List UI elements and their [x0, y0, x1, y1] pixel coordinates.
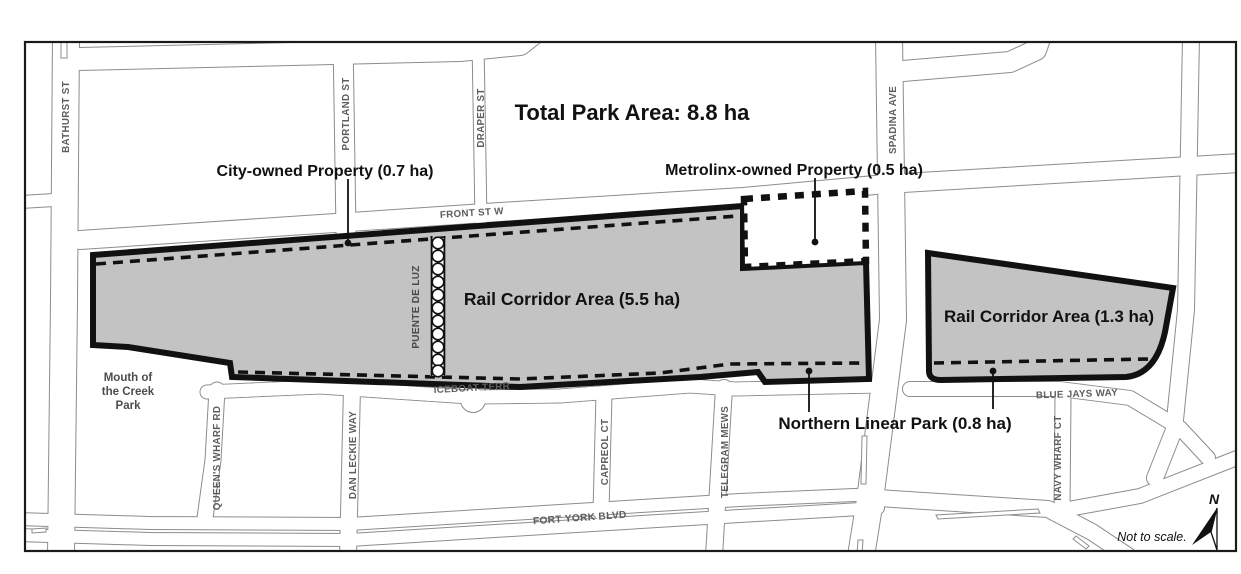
street-label-spadina: SPADINA AVE [888, 86, 899, 154]
bridge-chain-link [432, 263, 444, 275]
bridge-chain [432, 237, 444, 377]
map-title: Total Park Area: 8.8 ha [515, 100, 751, 125]
bridge-chain-link [432, 250, 444, 262]
street-label-navy-wharf: NAVY WHARF CT [1053, 415, 1064, 500]
rail-corridor-west-label: Rail Corridor Area (5.5 ha) [464, 289, 680, 309]
bridge-chain-link [432, 341, 444, 353]
street-label-telegram: TELEGRAM MEWS [720, 406, 731, 498]
northern-linear-park-dot-east [990, 368, 997, 375]
city-owned-label: City-owned Property (0.7 ha) [217, 163, 434, 180]
mouth-of-creek-park-label: the Creek [102, 386, 155, 398]
bridge-chain-link [432, 302, 444, 314]
street-label-portland: PORTLAND ST [341, 78, 352, 151]
northern-linear-park-dot-west [806, 368, 813, 375]
park-plan-figure: Total Park Area: 8.8 ha City-owned Prope… [0, 0, 1241, 574]
street-label-queens-wharf: QUEEN'S WHARF RD [212, 406, 223, 511]
bridge-chain-link [432, 328, 444, 340]
mouth-of-creek-park-label: Park [116, 400, 142, 412]
city-owned-leader-dot [345, 240, 352, 247]
metrolinx-parcel [744, 191, 866, 267]
puente-de-luz-label: PUENTE DE LUZ [411, 265, 422, 348]
bridge-chain-link [432, 276, 444, 288]
fort-york-west-median [32, 528, 46, 533]
spadina-median [861, 436, 867, 484]
puente-de-luz-bridge [430, 236, 446, 377]
north-label: N [1209, 491, 1220, 507]
street-label-bathurst: BATHURST ST [61, 81, 72, 153]
bridge-chain-link [432, 289, 444, 301]
street-label-dan-leckie: DAN LECKIE WAY [348, 411, 359, 499]
street-label-capreol: CAPREOL CT [600, 419, 611, 486]
bathurst-median [61, 42, 67, 58]
metrolinx-owned-label: Metrolinx-owned Property (0.5 ha) [665, 162, 923, 179]
mouth-of-creek-park-label: Mouth of [104, 372, 153, 384]
scale-note: Not to scale. [1117, 530, 1186, 544]
rail-corridor-east-label: Rail Corridor Area (1.3 ha) [944, 307, 1154, 326]
park-area-map: Total Park Area: 8.8 ha City-owned Prope… [0, 0, 1241, 574]
bridge-chain-link [432, 237, 444, 249]
bridge-chain-link [432, 365, 444, 377]
street-label-draper: DRAPER ST [476, 88, 487, 147]
bridge-chain-link [432, 315, 444, 327]
northern-linear-park-label: Northern Linear Park (0.8 ha) [778, 414, 1011, 433]
bridge-chain-link [432, 354, 444, 366]
metrolinx-leader-dot [812, 239, 819, 246]
